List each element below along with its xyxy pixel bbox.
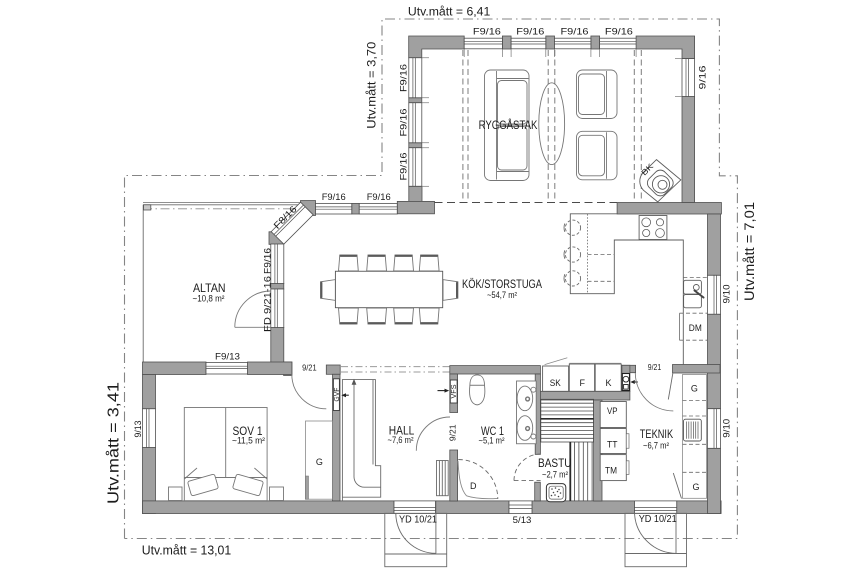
svg-text:F9/16: F9/16 — [605, 26, 633, 37]
svg-text:FD 9/21-16: FD 9/21-16 — [263, 276, 274, 332]
svg-text:~54,7 m²: ~54,7 m² — [487, 290, 517, 300]
svg-text:9/13: 9/13 — [133, 421, 144, 438]
svg-text:GVF: GVF — [334, 388, 341, 402]
svg-text:DM: DM — [689, 323, 702, 333]
svg-text:F9/16: F9/16 — [516, 26, 544, 37]
svg-text:TM: TM — [605, 465, 617, 475]
svg-text:YD 10/21: YD 10/21 — [399, 514, 437, 526]
svg-text:F9/16: F9/16 — [399, 109, 410, 137]
svg-text:9/10: 9/10 — [722, 419, 733, 438]
svg-text:F9/16: F9/16 — [561, 26, 589, 37]
svg-text:~5,1 m²: ~5,1 m² — [479, 435, 505, 445]
svg-text:Utv.mått = 3,70: Utv.mått = 3,70 — [365, 41, 379, 128]
svg-text:G: G — [693, 482, 700, 492]
svg-text:Utv.mått = 6,41: Utv.mått = 6,41 — [408, 7, 490, 19]
svg-text:TT: TT — [607, 440, 618, 450]
svg-text:9/21: 9/21 — [648, 363, 662, 372]
svg-text:9/21: 9/21 — [302, 364, 317, 373]
svg-text:BASTU: BASTU — [538, 458, 572, 470]
svg-text:D: D — [470, 481, 477, 491]
svg-text:F: F — [580, 378, 586, 388]
svg-text:9/10: 9/10 — [722, 285, 733, 304]
svg-text:Utv.mått = 3,41: Utv.mått = 3,41 — [106, 382, 123, 504]
svg-text:VP: VP — [607, 406, 618, 416]
svg-text:F9/16: F9/16 — [399, 153, 410, 181]
svg-text:TEKNIK: TEKNIK — [640, 429, 674, 441]
svg-text:~10,8 m²: ~10,8 m² — [193, 293, 225, 303]
svg-text:9/16: 9/16 — [698, 66, 709, 90]
svg-text:F9/16: F9/16 — [322, 192, 346, 203]
svg-text:F9/16: F9/16 — [367, 192, 391, 203]
svg-text:RYGGÅSTAK: RYGGÅSTAK — [479, 119, 538, 132]
svg-text:YD 10/21: YD 10/21 — [639, 513, 677, 525]
svg-text:VFS: VFS — [451, 384, 458, 398]
svg-text:~6,7 m²: ~6,7 m² — [643, 440, 669, 450]
svg-text:Utv.mått = 13,01: Utv.mått = 13,01 — [142, 543, 231, 558]
svg-text:~11,5 m²: ~11,5 m² — [232, 435, 265, 445]
svg-text:9/21: 9/21 — [449, 424, 458, 441]
svg-text:G: G — [691, 384, 698, 394]
svg-text:Utv.mått = 7,01: Utv.mått = 7,01 — [742, 202, 757, 301]
svg-text:F9/16: F9/16 — [399, 64, 410, 92]
svg-text:G: G — [316, 457, 323, 467]
svg-text:SK: SK — [550, 378, 561, 388]
svg-text:F9/16: F9/16 — [473, 26, 501, 37]
svg-text:F9/16: F9/16 — [262, 248, 273, 274]
svg-text:K: K — [606, 378, 612, 388]
svg-text:F9/13: F9/13 — [215, 352, 240, 363]
svg-text:~2,7 m²: ~2,7 m² — [542, 470, 568, 480]
svg-text:5/13: 5/13 — [513, 515, 532, 526]
svg-text:~7,6 m²: ~7,6 m² — [388, 435, 414, 445]
